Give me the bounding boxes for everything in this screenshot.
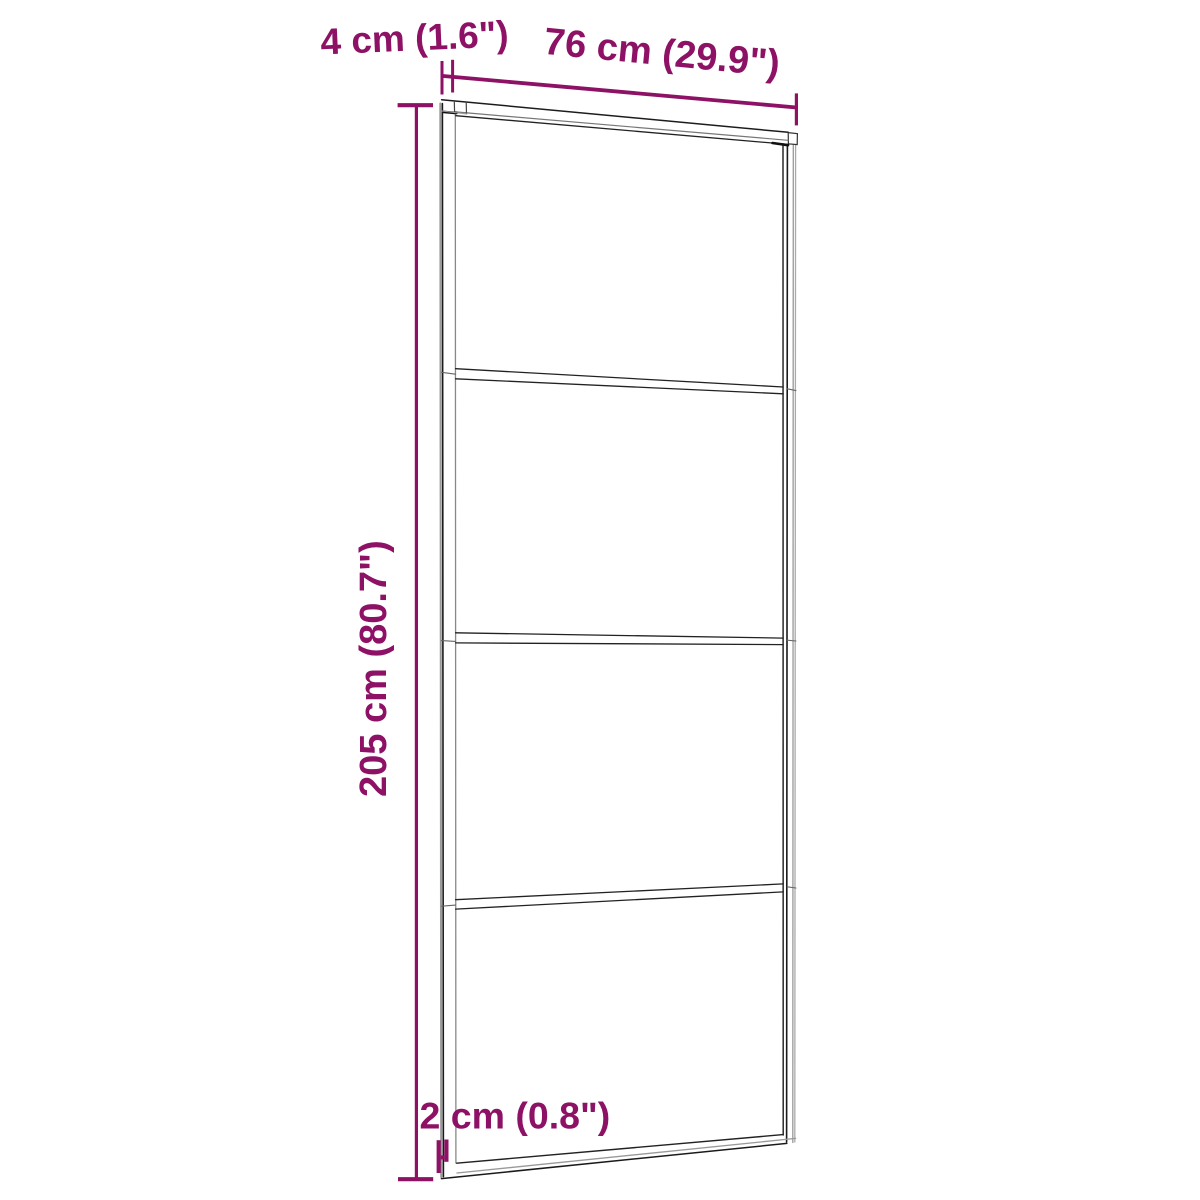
svg-text:2 cm (0.8"): 2 cm (0.8") bbox=[420, 1095, 611, 1137]
svg-text:205 cm (80.7"): 205 cm (80.7") bbox=[353, 540, 395, 797]
svg-text:4 cm (1.6"): 4 cm (1.6") bbox=[320, 13, 510, 62]
